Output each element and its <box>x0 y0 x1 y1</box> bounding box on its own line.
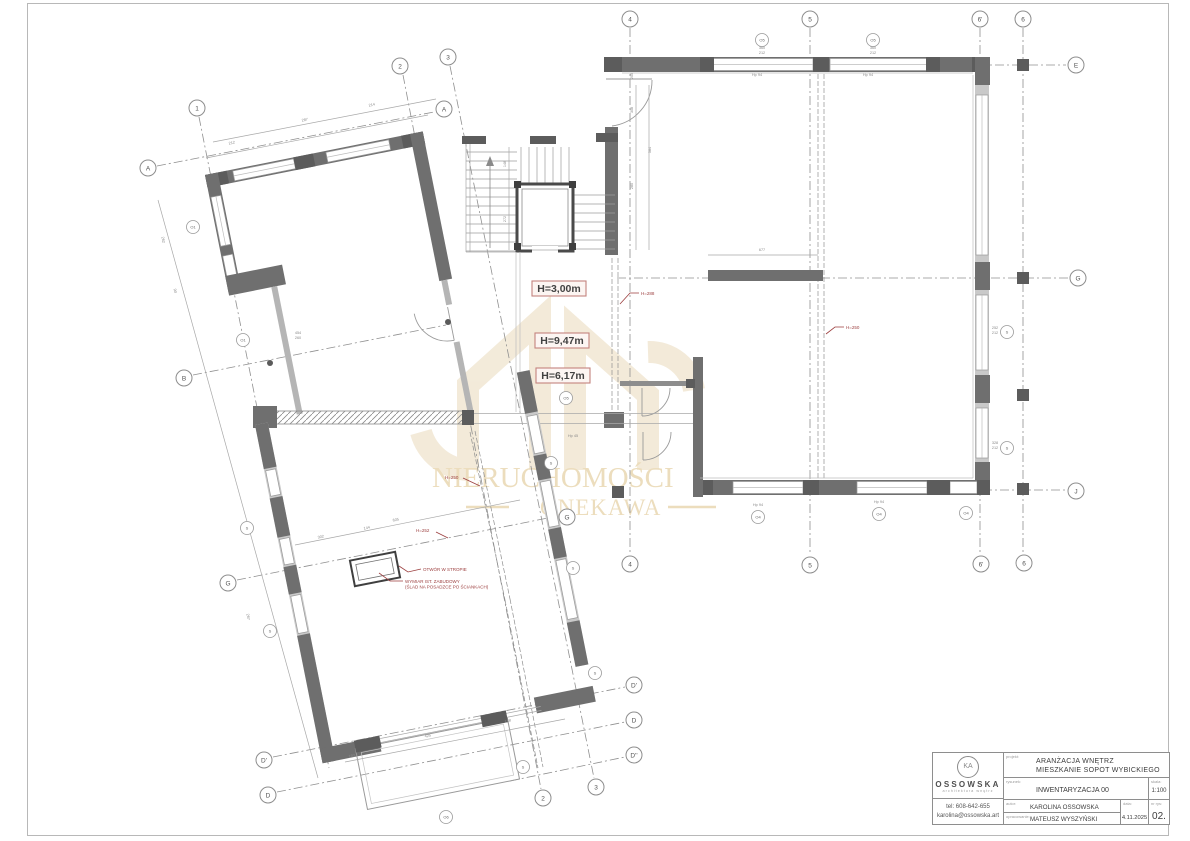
leader-label: H=252 <box>416 528 430 533</box>
leader-label: H=288 <box>641 291 655 296</box>
scale-label: skala: <box>1151 779 1161 784</box>
height-label: H=3,00m <box>537 283 581 295</box>
number-value: 02. <box>1149 811 1169 822</box>
dimension-text: 308 <box>630 107 634 113</box>
window-marker-label: S <box>550 461 553 466</box>
drawing-name: INWENTARYZACJA 00 <box>1036 787 1148 794</box>
window-marker-label: O4 <box>755 515 761 520</box>
grid-bubble-label: E <box>1074 63 1079 70</box>
height-label-box: H=6,17m <box>536 368 590 383</box>
title-block-date-cell: data: 4.11.2025 <box>1121 800 1149 824</box>
window-marker-label: O5 <box>563 396 569 401</box>
grid-bubble-label: D' <box>261 758 267 765</box>
grid-bubble-label: 6' <box>979 562 984 569</box>
dimension-text: 148 <box>503 161 507 167</box>
dimension-text: Hp 94 <box>863 73 873 77</box>
contact-phone: tel: 608-642-655 <box>933 803 1003 812</box>
survey-point <box>267 360 273 366</box>
dimension-text: Hp 94 <box>752 73 762 77</box>
project-label: projekt: <box>1006 754 1019 759</box>
dimension-text: 214 <box>368 102 375 107</box>
window-marker-label: S <box>246 526 249 531</box>
grid-bubble-label: G <box>1075 276 1080 283</box>
dimension-text: 193 <box>348 753 355 758</box>
window-marker-label: S <box>1006 330 1009 335</box>
hatched-junction-wall <box>253 406 474 428</box>
grid-bubble-label: A <box>442 107 447 114</box>
window-marker-label: S <box>1006 446 1009 451</box>
dimension-text: 262 <box>160 236 165 243</box>
number-label: nr rys: <box>1151 801 1162 806</box>
grid-bubble-label: 6 <box>1021 17 1025 24</box>
title-block-editor-cell: opracowanie: MATEUSZ WYSZYŃSKI <box>1004 813 1121 824</box>
survey-point <box>445 319 451 325</box>
grid-bubble-label: G <box>225 581 230 588</box>
drawing-label: rysunek: <box>1006 779 1021 784</box>
title-block-project-cell: projekt: ARANŻACJA WNĘTRZ MIESZKANIE SOP… <box>1004 753 1169 778</box>
grid-bubble-label: 6' <box>978 17 983 24</box>
dimension-text: 272 <box>503 216 507 222</box>
dimension-text: 90 <box>173 288 178 293</box>
window-marker-label: O5 <box>870 38 876 43</box>
window-marker-label: O4 <box>963 511 969 516</box>
date-value: 4.11.2025 <box>1121 815 1148 821</box>
grid-bubble-label: 2 <box>541 796 545 803</box>
dimension-text: Hp 94 <box>874 500 884 504</box>
window-marker-label: O6 <box>443 815 449 820</box>
grid-bubble-label: D'' <box>630 753 637 760</box>
left-wing-upper-room <box>205 131 479 454</box>
dimension-text: Hp 45 <box>568 434 578 438</box>
dimension-text: 328 <box>992 441 998 445</box>
leader-label: H=250 <box>846 325 860 330</box>
scale-value: 1:100 <box>1149 788 1169 794</box>
dimension-text: 212 <box>992 331 998 335</box>
grid-bubble-label: A <box>146 166 151 173</box>
dimension-text: 252 <box>992 326 998 330</box>
window-marker-label: O1 <box>190 225 196 230</box>
window-marker-label: O1 <box>240 338 246 343</box>
dimension-text: Hp 94 <box>753 503 763 507</box>
drawing-sheet: NIERUCHOMOŚCI ONEKAWA <box>0 0 1190 841</box>
leader-label: H=250 <box>445 475 459 480</box>
grid-bubble-label: 4 <box>628 562 632 569</box>
editor-label: opracowanie: <box>1006 814 1030 819</box>
grid-bubble-label: D <box>632 718 637 725</box>
title-block: KA OSSOWSKA architektura wnętrz tel: 608… <box>932 752 1170 825</box>
dimension-text: 605 <box>392 517 399 522</box>
dimension-text: 212 <box>228 140 235 145</box>
title-block-logo-cell: KA OSSOWSKA architektura wnętrz <box>933 753 1004 799</box>
dimension-text: 302 <box>317 534 324 539</box>
project-line1: ARANŻACJA WNĘTRZ <box>1036 757 1169 766</box>
dimension-text: 454 <box>295 331 301 335</box>
bay-window <box>354 710 520 809</box>
grid-bubble-label: B <box>182 376 186 383</box>
note-wymiar-1: WYMIAR IST. ZABUDOWY <box>405 579 460 584</box>
window-marker-label: S <box>269 629 272 634</box>
grid-bubble-label: D <box>266 793 271 800</box>
project-line2: MIESZKANIE SOPOT WYBICKIEGO <box>1036 766 1169 775</box>
grid-bubble-label: 5 <box>808 17 812 24</box>
title-block-number-cell: nr rys: 02. <box>1149 800 1169 824</box>
grid-bubble-label: 3 <box>446 55 450 62</box>
dimension-text: 212 <box>759 51 765 55</box>
window-marker-label: S <box>594 671 597 676</box>
height-label: H=9,47m <box>540 335 584 347</box>
grid-bubble-label: 2 <box>398 64 402 71</box>
grid-bubble-label: 1 <box>195 106 199 113</box>
floor-plan-svg: NIERUCHOMOŚCI ONEKAWA <box>0 0 1190 841</box>
window-marker-label: S <box>522 765 525 770</box>
height-label-box: H=9,47m <box>535 333 589 348</box>
title-block-drawing-cell: rysunek: INWENTARYZACJA 00 <box>1004 778 1149 800</box>
window-marker-label: O4 <box>876 512 882 517</box>
logo-monogram-icon: KA <box>957 756 979 778</box>
grid-bubble-label: G <box>564 515 569 522</box>
dimension-text: 287 <box>301 117 308 122</box>
title-block-contact: tel: 608-642-655 karolina@ossowska.art <box>933 799 1004 824</box>
dimension-text: 212 <box>870 51 876 55</box>
date-label: data: <box>1123 801 1132 806</box>
grid-bubble-label: 3 <box>594 785 598 792</box>
dimension-text: 280 <box>630 183 634 189</box>
elevator-shaft <box>514 181 576 254</box>
title-block-scale-cell: skala: 1:100 <box>1149 778 1169 800</box>
dimension-text: 677 <box>759 248 765 252</box>
dimension-text: 168 <box>504 718 511 723</box>
window-markers: O5 O5 O5 O4 O4 O4 S S O1 O1 S S S S S S … <box>187 34 1014 824</box>
grid-bubble-label: J <box>1074 489 1077 496</box>
note-wymiar-2: (ŚLAD NA POSADZCE PO ŚCIANKACH) <box>405 583 489 590</box>
title-block-author-cell: autor: KAROLINA OSSOWSKA <box>1004 800 1121 813</box>
logo-name: OSSOWSKA <box>933 780 1003 789</box>
dimension-text: 584 <box>648 147 652 153</box>
grid-bubble-label: 5 <box>808 563 812 570</box>
editor-value: MATEUSZ WYSZYŃSKI <box>1030 816 1120 823</box>
grid-bubble-label: 6 <box>1022 561 1026 568</box>
height-label-box: H=3,00m <box>532 281 586 296</box>
right-wing-walls <box>604 57 1029 498</box>
window-marker-label: S <box>572 566 575 571</box>
dimension-text: 212 <box>992 446 998 450</box>
author-label: autor: <box>1006 801 1016 806</box>
dimension-text: 260 <box>295 336 301 340</box>
window-marker-label: O5 <box>759 38 765 43</box>
dimension-text: 267 <box>245 613 250 620</box>
logo-subtitle: architektura wnętrz <box>933 789 1003 793</box>
dimension-text: 425 <box>424 733 431 738</box>
author-value: KAROLINA OSSOWSKA <box>1030 804 1120 811</box>
contact-email: karolina@ossowska.art <box>933 812 1003 821</box>
note-otwor: OTWÓR W STROPIE <box>423 566 467 572</box>
grid-bubble-label: 4 <box>628 17 632 24</box>
height-label: H=6,17m <box>541 370 585 382</box>
grid-bubble-label: D' <box>631 683 637 690</box>
dimension-text: 205 <box>630 73 634 79</box>
